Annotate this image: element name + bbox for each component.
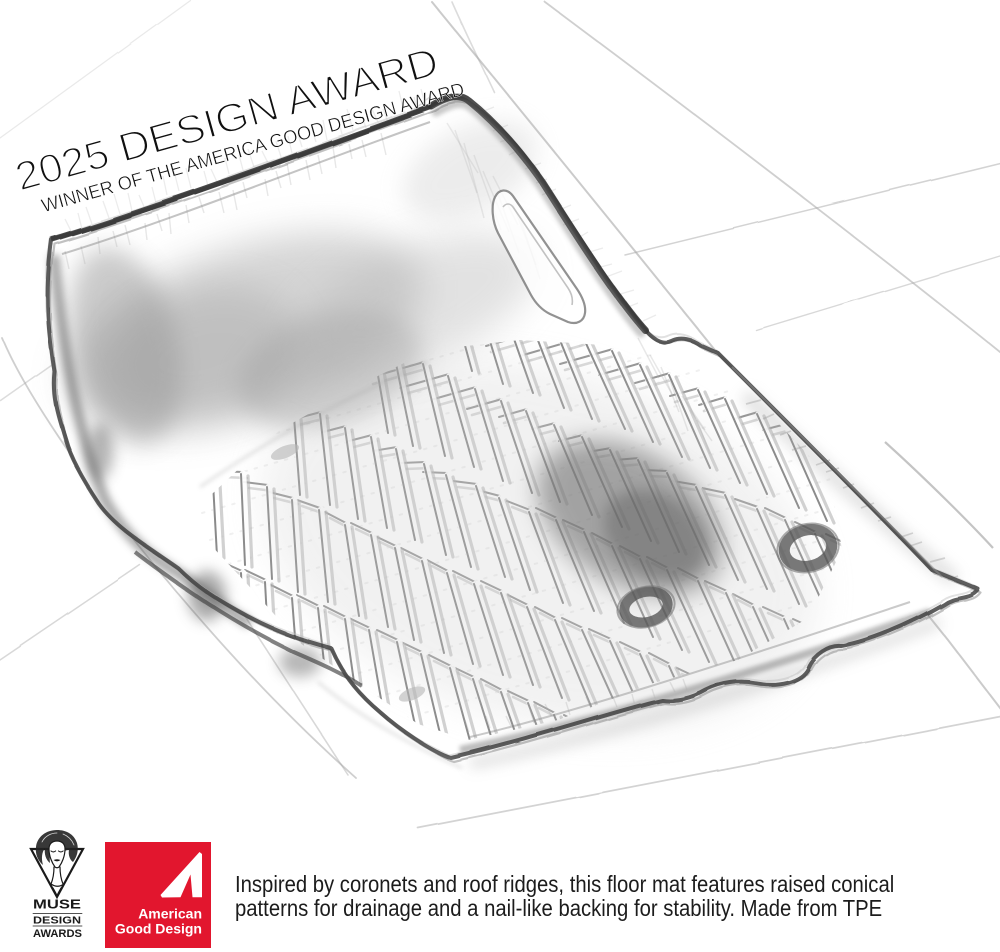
svg-text:American: American [138,906,202,922]
svg-text:MUSE: MUSE [33,897,81,912]
svg-text:patterns for drainage and a na: patterns for drainage and a nail-like ba… [235,895,882,922]
svg-text:DESIGN: DESIGN [33,915,81,927]
svg-text:Good Design: Good Design [115,921,202,937]
svg-text:Inspired by coronets and roof: Inspired by coronets and roof ridges, th… [235,871,894,898]
svg-text:AWARDS: AWARDS [33,928,82,940]
